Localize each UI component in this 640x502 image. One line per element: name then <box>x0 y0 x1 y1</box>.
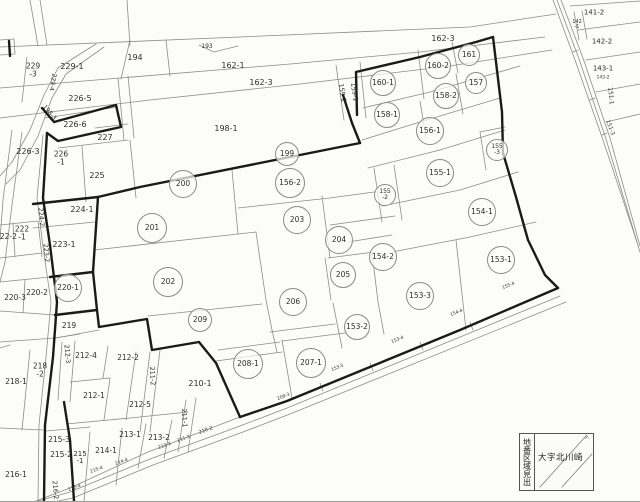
parcel-label-210-2: 210-2 <box>198 426 213 436</box>
parcel-label-223-1: 223-1 <box>52 241 75 249</box>
parcel-label-213-3: 213-3 <box>158 443 172 452</box>
parcel-label-155-2: 155-2 <box>374 184 396 206</box>
legend-box: 地番区域見出 大字北川崎 <box>519 433 594 491</box>
parcel-label-156-1: 156-1 <box>416 117 444 145</box>
parcel-label-225: 225 <box>89 172 104 180</box>
parcel-label-212-5: 212-5 <box>129 401 151 409</box>
parcel-label-162-3: 162-3 <box>249 79 272 87</box>
parcel-label-226-1: 226-1 <box>54 150 68 165</box>
parcel-label-220-2: 220-2 <box>26 289 48 297</box>
parcel-label-229-4: 229-4 <box>47 73 56 91</box>
parcel-label-213-2: 213-2 <box>148 434 170 442</box>
parcel-label-153-1: 153-1 <box>487 246 515 274</box>
parcel-label-198-1: 198-1 <box>214 125 237 133</box>
parcel-label-161: 161 <box>458 44 480 66</box>
parcel-label-153-5: 153-5 <box>331 364 345 373</box>
parcel-label-142-2: 142-2 <box>592 38 612 45</box>
parcel-label-211-3: 211-3 <box>177 436 191 445</box>
parcel-label-141-2: 141-2 <box>584 9 604 16</box>
parcel-label-220-1: 220-1 <box>54 274 82 302</box>
parcel-label-224-1: 224-1 <box>70 206 93 214</box>
parcel-label-209: 209 <box>188 308 212 332</box>
parcel-label-162-1: 162-1 <box>221 62 244 70</box>
parcel-label-215-1: 215-1 <box>73 451 86 465</box>
parcel-label-215-3: 215-3 <box>48 436 70 444</box>
parcel-label-156-2: 156-2 <box>275 168 305 198</box>
parcel-label-159-1: 159-1 <box>349 82 359 102</box>
parcel-label-153-2: 153-2 <box>344 314 370 340</box>
parcel-label-201: 201 <box>137 213 167 243</box>
parcel-label-220-3: 220-3 <box>4 294 26 302</box>
parcel-label-214-4: 214-4 <box>115 459 129 468</box>
parcel-label-162-3: 162-3 <box>431 35 454 43</box>
parcel-label-200: 200 <box>169 170 197 198</box>
parcel-label-160-1: 160-1 <box>370 70 396 96</box>
parcel-label-226-6: 226-6 <box>63 121 86 129</box>
parcel-label-213-1: 213-1 <box>119 431 141 439</box>
parcel-label-212-1: 212-1 <box>83 392 105 400</box>
legend-area-name: 大字北川崎 <box>535 434 593 490</box>
parcel-label-212-2: 212-2 <box>117 354 139 362</box>
parcel-label-212-4: 212-4 <box>75 352 97 360</box>
parcel-label-218-2: 218-2 <box>33 362 47 377</box>
parcel-label-153-4: 153-4 <box>391 336 405 345</box>
parcel-label-208-1: 208-1 <box>233 349 263 379</box>
parcel-label-204: 204 <box>325 226 353 254</box>
parcel-label-218-1: 218-1 <box>5 378 27 386</box>
parcel-label-143-2: 143-2 <box>596 77 609 82</box>
parcel-label-142-1: 142-1 <box>572 20 582 30</box>
parcel-label-159-2: 159-2 <box>337 83 347 103</box>
parcel-label-154-2: 154-2 <box>369 243 397 271</box>
parcel-label-206: 206 <box>279 288 307 316</box>
parcel-label-198-3: 198-3 <box>41 104 57 121</box>
parcel-label-202: 202 <box>153 267 183 297</box>
parcel-label-155-1: 155-1 <box>426 159 454 187</box>
legend-vertical-title: 地番区域見出 <box>520 434 535 490</box>
parcel-label-216-4: 216-4 <box>68 485 82 494</box>
parcel-label-154-4: 154-4 <box>450 309 464 318</box>
parcel-label-154-1: 154-1 <box>468 198 496 226</box>
parcel-label-224-2: 224-2 <box>37 207 45 226</box>
parcel-label-222-2: 222-2 <box>0 233 17 241</box>
parcel-label-151-3: 151-3 <box>604 120 615 137</box>
parcel-label-207-1: 207-1 <box>296 348 326 378</box>
parcel-label-208-3: 208-3 <box>277 393 291 402</box>
cadastral-map-canvas: 199200156-2201203204154-2205202153-32062… <box>0 0 640 502</box>
parcel-label-229-3: 229-3 <box>26 62 40 77</box>
parcel-label-203: 203 <box>283 206 311 234</box>
parcel-label-157: 157 <box>465 72 487 94</box>
parcel-label-155-4: 155-4 <box>502 282 516 291</box>
parcel-label-199: 199 <box>275 142 299 166</box>
parcel-label-215-2: 215-2 <box>50 451 72 459</box>
parcel-label-215-4: 215-4 <box>90 467 104 476</box>
parcel-label-223-2: 223-2 <box>42 243 50 262</box>
parcel-label-226-5: 226-5 <box>68 95 91 103</box>
parcel-label-193: 193 <box>201 44 212 50</box>
parcel-label-194: 194 <box>127 54 142 62</box>
parcel-label-219: 219 <box>62 322 76 330</box>
parcel-label-160-2: 160-2 <box>425 53 451 79</box>
parcel-label-153-3: 153-3 <box>406 282 434 310</box>
parcel-label-214-1: 214-1 <box>95 447 117 455</box>
parcel-label-211-1: 211-1 <box>180 408 188 427</box>
parcel-label-212-3: 212-3 <box>63 344 71 363</box>
parcel-label-143-1: 143-1 <box>593 65 613 72</box>
parcel-label-211-2: 211-2 <box>148 366 156 385</box>
parcel-label-155-3: 155-3 <box>486 139 508 161</box>
parcel-label-226-3: 226-3 <box>16 148 39 156</box>
parcel-label-151-1: 151-1 <box>606 87 614 105</box>
parcel-label-205: 205 <box>330 262 356 288</box>
parcel-label-210-1: 210-1 <box>188 380 211 388</box>
parcel-label-216-1: 216-1 <box>5 471 27 479</box>
parcel-label-158-1: 158-1 <box>374 102 400 128</box>
parcel-label-158-2: 158-2 <box>433 83 459 109</box>
parcel-labels-layer: 199200156-2201203204154-2205202153-32062… <box>0 0 640 501</box>
parcel-label-227: 227 <box>97 134 112 142</box>
parcel-label-229-1: 229-1 <box>60 63 83 71</box>
parcel-label-216-2: 216-2 <box>51 480 59 499</box>
